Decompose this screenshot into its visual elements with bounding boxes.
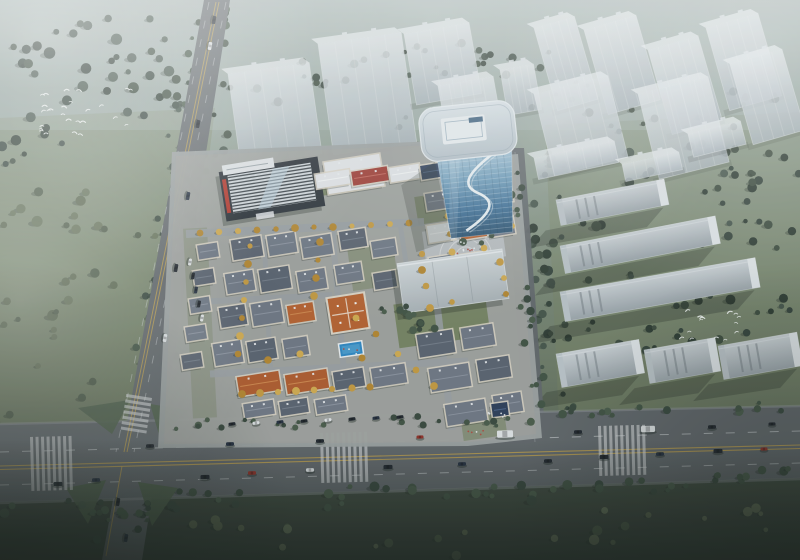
scene-svg (0, 0, 800, 560)
aerial-masterplan-render (0, 0, 800, 560)
layer-fog-vignette (0, 0, 800, 560)
